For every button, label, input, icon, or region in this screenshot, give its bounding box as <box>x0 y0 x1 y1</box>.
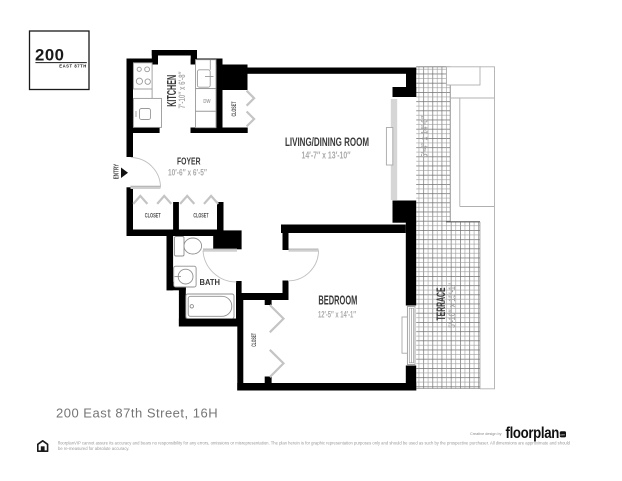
svg-text:ENTRY: ENTRY <box>113 164 120 180</box>
svg-text:FOYER: FOYER <box>177 157 201 168</box>
svg-text:7′-10″ x 6′-8″: 7′-10″ x 6′-8″ <box>177 71 187 108</box>
svg-text:CLOSET: CLOSET <box>145 213 161 220</box>
svg-text:12′-5″ x 14′-1″: 12′-5″ x 14′-1″ <box>318 310 356 321</box>
svg-text:be re-measured for absolute ac: be re-measured for absolute accuracy. <box>58 446 129 451</box>
svg-text:EAST 87TH: EAST 87TH <box>59 63 87 68</box>
svg-text:5′-10″ x 15′-1″: 5′-10″ x 15′-1″ <box>447 283 458 328</box>
svg-text:CLOSET: CLOSET <box>231 101 238 116</box>
svg-text:BATH: BATH <box>200 277 221 287</box>
svg-text:LIVING/DINING ROOM: LIVING/DINING ROOM <box>285 135 369 149</box>
svg-text:200 East 87th Street, 16H: 200 East 87th Street, 16H <box>56 406 218 421</box>
svg-text:14′-7″ x 13′-10″: 14′-7″ x 13′-10″ <box>302 151 351 162</box>
svg-text:BEDROOM: BEDROOM <box>318 293 357 308</box>
svg-text:CLOSET: CLOSET <box>251 333 258 347</box>
svg-text:5′-4″ x 14′-0″: 5′-4″ x 14′-0″ <box>420 115 431 157</box>
svg-text:CLOSET: CLOSET <box>193 213 208 220</box>
svg-text:Creative design by: Creative design by <box>470 432 502 436</box>
svg-text:TERRACE: TERRACE <box>436 287 448 320</box>
svg-text:floorplanVIP cannot assure its: floorplanVIP cannot assure its accuracy … <box>58 441 571 446</box>
svg-text:DW: DW <box>203 99 211 105</box>
svg-text:200: 200 <box>35 47 65 65</box>
svg-text:floorplan: floorplan <box>506 425 560 442</box>
svg-text:com: com <box>559 433 565 437</box>
svg-text:10′-6″ x 6′-5″: 10′-6″ x 6′-5″ <box>168 168 207 179</box>
